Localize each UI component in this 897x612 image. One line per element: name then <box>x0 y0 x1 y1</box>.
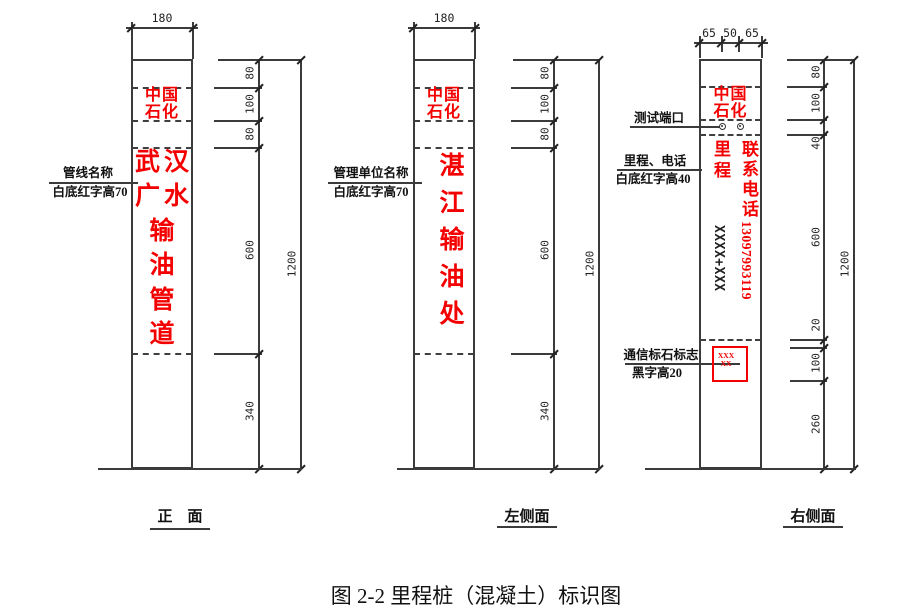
rightside-dashed-line <box>700 339 761 341</box>
mileage-title: 里程 <box>708 140 733 182</box>
figure-caption: 图 2-2 里程桩（混凝土）标识图 <box>0 580 897 610</box>
rightside-dashed-line <box>700 134 761 136</box>
extension-line <box>214 120 262 122</box>
logo-line2: 石化 <box>699 104 762 121</box>
leftside-top-dim: 180 <box>413 11 475 25</box>
leftside-view-underline <box>497 526 557 528</box>
leftside-annotation-line1: 管理单位名称 <box>325 167 417 180</box>
dim-value: 100 <box>244 94 257 114</box>
extension-line <box>511 120 557 122</box>
phone-title: 联系电话 <box>736 140 761 220</box>
extension-line <box>511 353 557 355</box>
mileage-annotation-rule <box>617 169 702 171</box>
dim-overall-line <box>300 59 302 469</box>
test-port-circle <box>737 123 744 130</box>
dim-value: 100 <box>539 94 552 114</box>
front-top-dim: 180 <box>131 11 193 25</box>
mileage-annotation-line2: 白底红字高40 <box>612 173 694 186</box>
dimension-line <box>694 42 768 44</box>
name-char: 武 <box>135 150 160 176</box>
marker-annotation-line2: 黑字高20 <box>622 367 692 380</box>
logo-line2: 石化 <box>413 105 475 122</box>
dim-overall-line <box>853 59 855 469</box>
logo-line1: 中国 <box>413 88 475 105</box>
dim-value: 340 <box>539 401 552 421</box>
dim-overall-line <box>598 59 600 469</box>
dim-value: 600 <box>244 240 257 260</box>
front-dashed-line <box>132 353 192 355</box>
dim-overall-value: 1200 <box>839 251 852 278</box>
rightside-sinopec-logo: 中国 石化 <box>699 87 762 120</box>
front-annotation-line2: 白底红字高70 <box>45 186 135 199</box>
dim-value: 340 <box>244 401 257 421</box>
leftside-dashed-line <box>414 353 474 355</box>
figure-canvas: 中国 石化 武 汉 广 水 输 油 管 道 管线名称 白底红字高70 180 8… <box>0 0 897 612</box>
rightside-top-dim: 50 <box>719 26 741 40</box>
leftside-annotation-line2: 白底红字高70 <box>328 186 414 199</box>
dim-value: 100 <box>810 353 823 373</box>
ground-line <box>645 468 856 470</box>
rightside-top-dim: 65 <box>740 26 764 40</box>
dim-value: 20 <box>810 318 823 331</box>
leftside-view-label: 左侧面 <box>477 505 577 526</box>
dimension-line <box>126 27 198 29</box>
ground-line <box>397 468 600 470</box>
name-char: 广 <box>135 184 160 210</box>
test-port-circle <box>719 123 726 130</box>
ground-line <box>98 468 302 470</box>
extension-line <box>513 59 600 61</box>
test-port-leader-line <box>630 126 722 128</box>
rightside-view-underline <box>783 526 843 528</box>
extension-line <box>214 147 262 149</box>
dim-overall-value: 1200 <box>584 251 597 278</box>
front-view-label: 正 面 <box>130 505 230 526</box>
name-char: 汉 <box>164 150 189 176</box>
name-char: 输 <box>134 219 190 245</box>
dimension-line <box>408 27 480 29</box>
mileage-value: XXXX+XXX <box>711 225 726 292</box>
name-char: 油 <box>134 253 190 279</box>
test-port-label: 测试端口 <box>630 112 688 125</box>
dim-value: 260 <box>810 414 823 434</box>
dim-value: 40 <box>810 136 823 149</box>
dim-value: 80 <box>244 127 257 140</box>
rightside-top-dim: 65 <box>697 26 721 40</box>
extension-line <box>511 87 557 89</box>
name-char: 管 <box>134 288 190 314</box>
extension-line <box>511 147 557 149</box>
leftside-sinopec-logo: 中国 石化 <box>413 88 475 121</box>
dim-value: 600 <box>539 240 552 260</box>
dim-overall-value: 1200 <box>286 251 299 278</box>
name-char: 道 <box>134 322 190 348</box>
marker-annotation-line1: 通信标石标志 <box>620 349 702 362</box>
rightside-view-label: 右侧面 <box>763 505 863 526</box>
front-sinopec-logo: 中国 石化 <box>131 88 193 121</box>
front-annotation-rule <box>49 182 138 184</box>
dim-value: 80 <box>244 66 257 79</box>
logo-line1: 中国 <box>131 88 193 105</box>
dim-value: 80 <box>539 127 552 140</box>
phone-number: 13097993119 <box>738 221 754 300</box>
leftside-dashed-line <box>414 147 474 149</box>
marker-box-line2: XX <box>716 360 736 368</box>
dim-value: 600 <box>810 227 823 247</box>
extension-line <box>214 87 262 89</box>
front-pipeline-name: 武 汉 广 水 输 油 管 道 <box>134 150 190 348</box>
dim-value: 100 <box>810 93 823 113</box>
marker-box-text: XXX XX <box>716 352 736 367</box>
front-view-underline <box>150 528 210 530</box>
dim-value: 80 <box>810 65 823 78</box>
logo-line2: 石化 <box>131 105 193 122</box>
logo-line1: 中国 <box>699 87 762 104</box>
name-row: 广 水 <box>134 184 190 210</box>
dim-value: 80 <box>539 66 552 79</box>
leftside-unit-name: 湛江输油处 <box>431 152 467 337</box>
extension-line <box>214 353 262 355</box>
front-annotation-line1: 管线名称 <box>48 167 128 180</box>
leftside-annotation-rule <box>328 182 422 184</box>
name-char: 水 <box>164 184 189 210</box>
mileage-annotation-line1: 里程、电话 <box>615 155 695 168</box>
name-row: 武 汉 <box>134 150 190 176</box>
